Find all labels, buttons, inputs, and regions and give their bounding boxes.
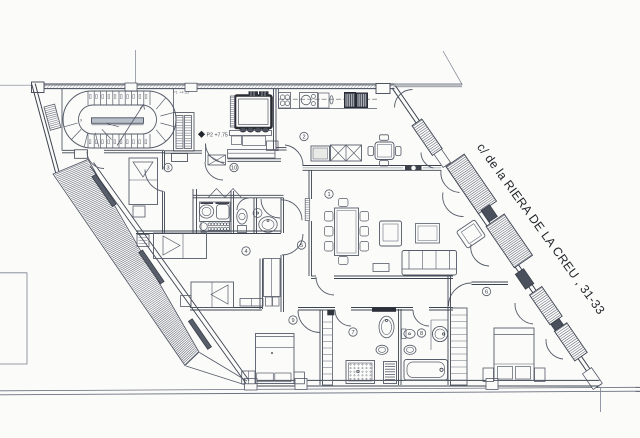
- svg-text:P2 +7.75: P2 +7.75: [207, 133, 228, 139]
- svg-text:9: 9: [80, 119, 82, 123]
- svg-text:5: 5: [300, 243, 303, 249]
- svg-text:4: 4: [244, 249, 247, 255]
- svg-text:8: 8: [420, 331, 423, 337]
- svg-text:7: 7: [351, 330, 354, 336]
- svg-text:P1 +4.35: P1 +4.35: [173, 90, 190, 95]
- svg-text:10: 10: [231, 166, 237, 172]
- svg-text:9: 9: [291, 318, 294, 324]
- svg-text:1: 1: [327, 192, 330, 198]
- svg-text:6: 6: [485, 290, 488, 296]
- svg-text:2: 2: [302, 135, 305, 141]
- svg-text:3: 3: [166, 166, 169, 172]
